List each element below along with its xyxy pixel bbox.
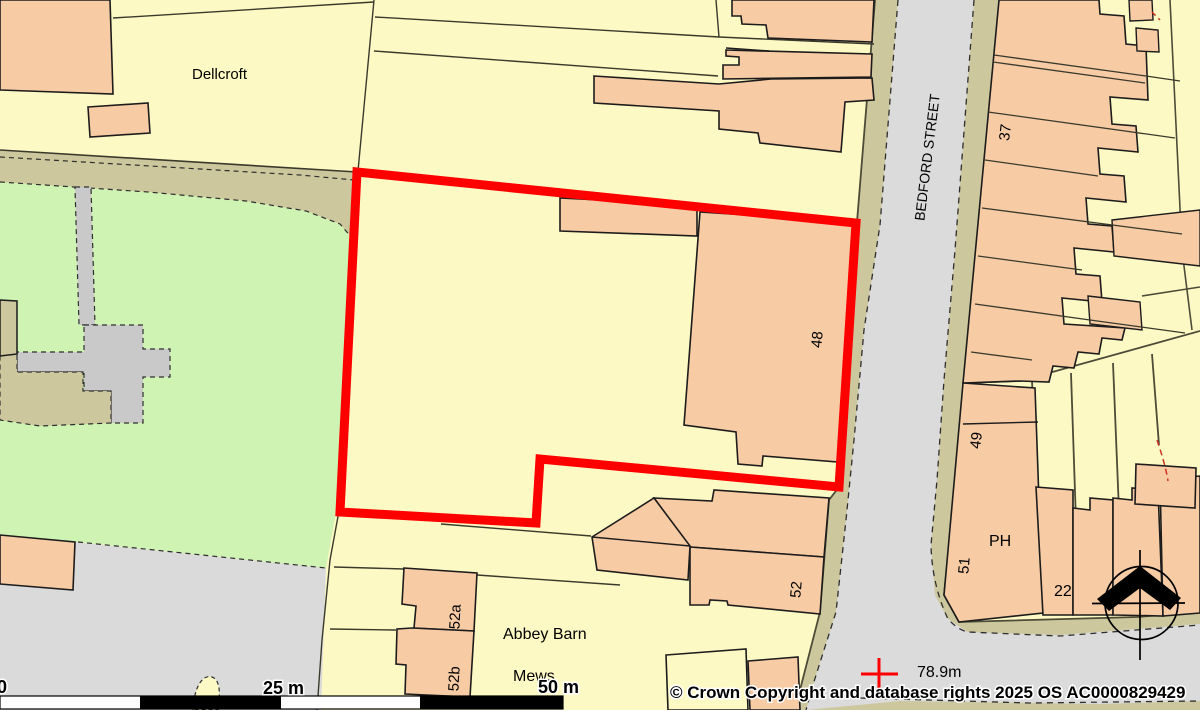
svg-text:PH: PH <box>989 533 1011 550</box>
svg-text:© Crown Copyright and database: © Crown Copyright and database rights 20… <box>670 683 1185 702</box>
svg-text:78.9m: 78.9m <box>917 664 961 681</box>
svg-text:25 m: 25 m <box>263 678 304 698</box>
svg-text:22: 22 <box>1054 583 1072 600</box>
svg-text:51: 51 <box>955 557 973 575</box>
svg-text:Dellcroft: Dellcroft <box>192 66 248 83</box>
svg-text:Abbey Barn: Abbey Barn <box>503 626 587 643</box>
svg-text:50 m: 50 m <box>538 677 579 697</box>
svg-text:37: 37 <box>996 123 1015 142</box>
svg-text:0: 0 <box>0 677 7 697</box>
svg-text:49: 49 <box>967 431 986 450</box>
svg-text:48: 48 <box>808 331 826 349</box>
svg-text:52b: 52b <box>445 666 463 692</box>
svg-text:52: 52 <box>787 581 805 599</box>
svg-text:52a: 52a <box>446 603 464 630</box>
